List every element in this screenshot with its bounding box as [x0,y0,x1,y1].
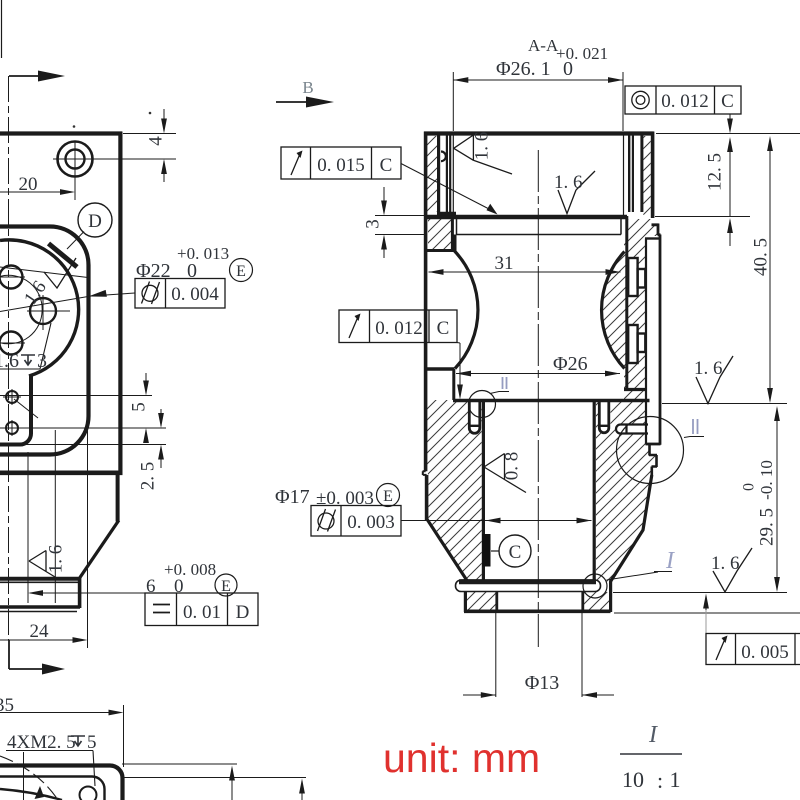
svg-text:B: B [302,78,313,97]
svg-text:E: E [383,488,393,505]
svg-text:Φ17: Φ17 [275,486,310,508]
svg-text:-0. 10: -0. 10 [757,460,776,500]
svg-text:24: 24 [30,621,50,642]
svg-text::: : [657,768,663,793]
svg-text:6: 6 [146,576,156,597]
svg-text:0. 015: 0. 015 [317,155,365,176]
svg-text:E: E [236,263,246,280]
svg-text:1: 1 [670,767,681,792]
svg-text:1. 6: 1. 6 [554,172,583,193]
svg-text:1. 6: 1. 6 [45,545,66,574]
svg-text:0: 0 [174,576,184,597]
svg-text:unit: mm: unit: mm [383,735,540,781]
svg-text:Φ13: Φ13 [525,672,560,694]
svg-text:10: 10 [622,767,644,792]
svg-text:E: E [221,578,231,595]
svg-text:2. 5: 2. 5 [137,462,158,491]
svg-text:I: I [665,548,675,574]
svg-text:3: 3 [37,350,47,372]
svg-text:Φ26: Φ26 [553,353,588,375]
svg-text:C: C [509,542,522,563]
svg-text:Φ26. 1: Φ26. 1 [496,58,551,80]
svg-text:I: I [648,722,658,748]
svg-text:4XM2. 5: 4XM2. 5 [7,732,76,753]
svg-text:0. 005: 0. 005 [741,642,789,663]
svg-text:D: D [88,211,102,232]
svg-text:0: 0 [741,483,758,491]
svg-text:1.6: 1.6 [0,350,19,372]
svg-text:5: 5 [87,732,97,753]
svg-text:+0. 008: +0. 008 [164,560,216,579]
svg-text:4: 4 [145,136,166,146]
svg-text:29. 5: 29. 5 [756,508,777,546]
svg-text:Φ22: Φ22 [136,260,171,282]
svg-text:1. 6: 1. 6 [694,358,723,379]
svg-text:D: D [236,602,250,623]
svg-text:0: 0 [187,260,197,282]
svg-text:40. 5: 40. 5 [750,238,771,276]
svg-text:20: 20 [19,174,38,195]
svg-text:C: C [437,318,450,339]
svg-text:C: C [721,91,734,112]
svg-text:A-A: A-A [528,36,559,55]
svg-text:1. 6: 1. 6 [471,132,492,161]
svg-text:3: 3 [362,219,383,229]
svg-text:C: C [380,155,393,176]
svg-text:12. 5: 12. 5 [704,153,725,191]
svg-text:+0. 021: +0. 021 [556,44,608,63]
svg-text:5: 5 [128,402,149,412]
svg-text:1. 6: 1. 6 [711,553,740,574]
svg-text:0. 012: 0. 012 [375,318,423,339]
svg-text:31: 31 [495,253,514,274]
svg-text:0. 01: 0. 01 [183,602,221,623]
svg-text:0. 004: 0. 004 [171,284,219,305]
svg-text:0. 003: 0. 003 [347,512,395,533]
svg-text:+0. 013: +0. 013 [177,244,229,263]
svg-text:0. 8: 0. 8 [501,452,522,481]
svg-text:0. 012: 0. 012 [661,91,709,112]
